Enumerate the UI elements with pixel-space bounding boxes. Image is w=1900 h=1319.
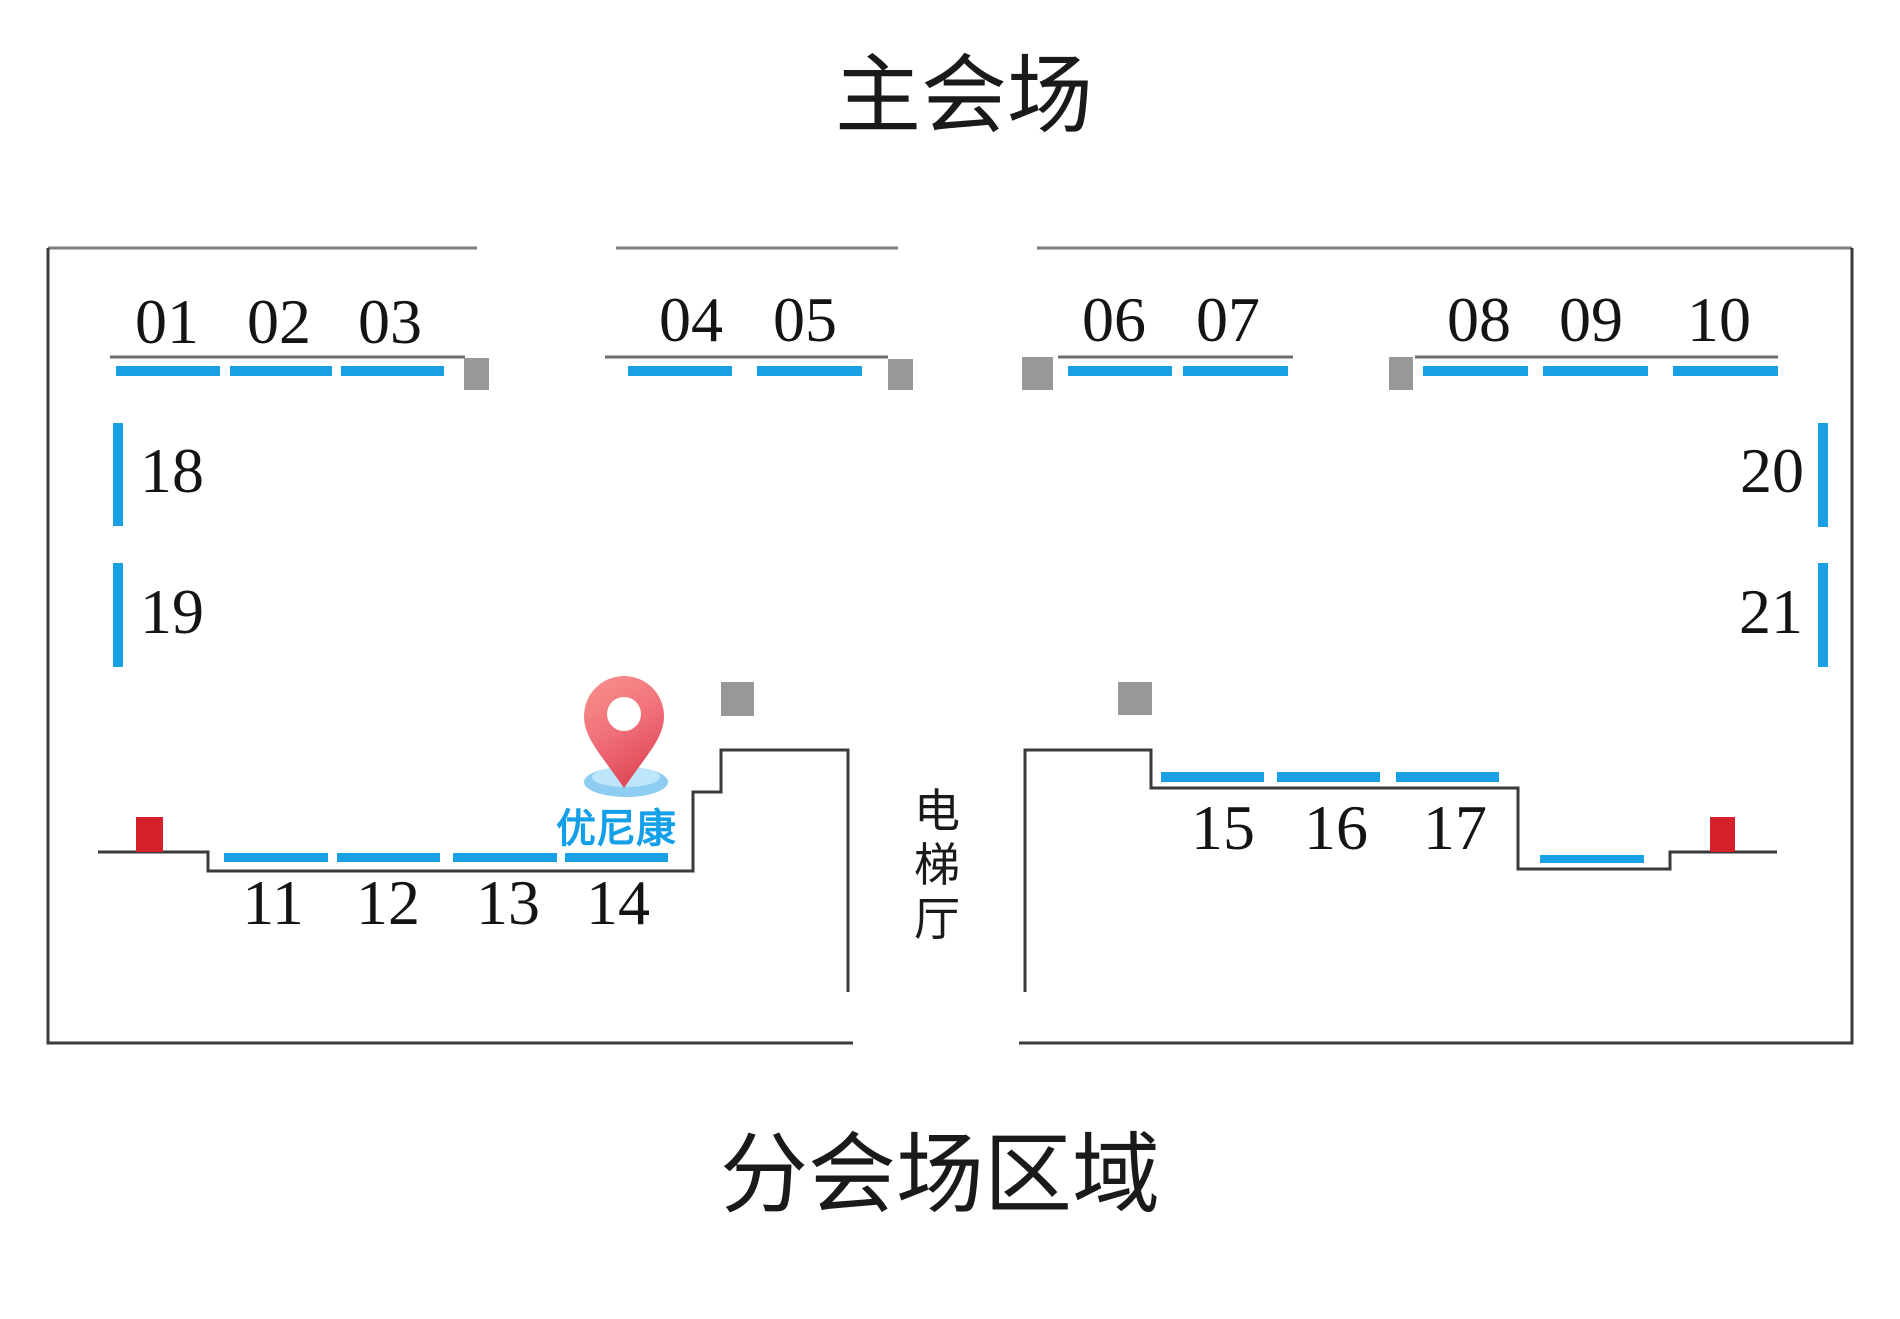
door-marker-icon xyxy=(888,359,913,390)
booth-18-dash xyxy=(113,423,123,526)
door-marker-icon xyxy=(721,682,754,716)
sub-area-title: 分会场区域 xyxy=(720,1133,1160,1221)
booth-16-number: 16 xyxy=(1304,796,1368,860)
booth-15-number: 15 xyxy=(1191,796,1255,860)
booth-03-number: 03 xyxy=(358,290,422,354)
red-marker-icon xyxy=(136,817,163,852)
booth-11-dash xyxy=(224,853,328,862)
location-pin-icon xyxy=(584,676,668,797)
booth-08-number: 08 xyxy=(1447,288,1511,352)
booth-04-number: 04 xyxy=(659,288,723,352)
door-marker-icon xyxy=(1118,682,1152,715)
elevator-hall-label: 电梯厅 xyxy=(913,785,961,947)
booth-15-dash xyxy=(1161,772,1264,782)
booth-07-number: 07 xyxy=(1196,288,1260,352)
booth-13-number: 13 xyxy=(476,871,540,935)
booth-14-dash xyxy=(565,853,668,862)
booth-18-number: 18 xyxy=(140,439,204,503)
booth-10-dash xyxy=(1673,366,1778,376)
booth-06-dash xyxy=(1068,366,1172,376)
booth-08-dash xyxy=(1423,366,1528,376)
page-title: 主会场 xyxy=(835,53,1093,139)
booth-13-dash xyxy=(453,853,557,862)
door-marker-icon xyxy=(464,358,489,390)
booth-19-dash xyxy=(113,563,123,667)
corner-booth-dash xyxy=(1540,855,1644,863)
booth-01-dash xyxy=(116,366,220,376)
booth-02-number: 02 xyxy=(247,290,311,354)
left-room-staircase-wall xyxy=(98,750,848,992)
booth-17-dash xyxy=(1396,772,1499,782)
booth-20-dash xyxy=(1818,423,1828,527)
booth-05-dash xyxy=(757,366,862,376)
booth-12-number: 12 xyxy=(356,871,420,935)
booth-05-number: 05 xyxy=(773,288,837,352)
booth-21-dash xyxy=(1818,563,1828,667)
booth-21-number: 21 xyxy=(1739,580,1803,644)
door-marker-icon xyxy=(1022,357,1053,390)
booth-07-dash xyxy=(1183,366,1288,376)
booth-04-dash xyxy=(628,366,732,376)
right-room-staircase-wall xyxy=(1025,750,1777,992)
booth-01-number: 01 xyxy=(135,290,199,354)
booth-02-dash xyxy=(230,366,332,376)
door-marker-icon xyxy=(1389,357,1413,390)
floor-plan-canvas xyxy=(0,0,1900,1319)
booth-09-number: 09 xyxy=(1559,288,1623,352)
booth-11-number: 11 xyxy=(242,871,304,935)
booth-03-dash xyxy=(341,366,444,376)
booth-12-dash xyxy=(337,853,440,862)
booth-16-dash xyxy=(1277,772,1380,782)
booth-10-number: 10 xyxy=(1687,288,1751,352)
highlight-booth-label: 优尼康 xyxy=(556,809,676,849)
booth-09-dash xyxy=(1543,366,1648,376)
booth-14-number: 14 xyxy=(586,871,650,935)
booth-20-number: 20 xyxy=(1740,439,1804,503)
booth-17-number: 17 xyxy=(1423,796,1487,860)
booth-19-number: 19 xyxy=(140,580,204,644)
red-marker-icon xyxy=(1710,817,1735,852)
booth-06-number: 06 xyxy=(1082,288,1146,352)
